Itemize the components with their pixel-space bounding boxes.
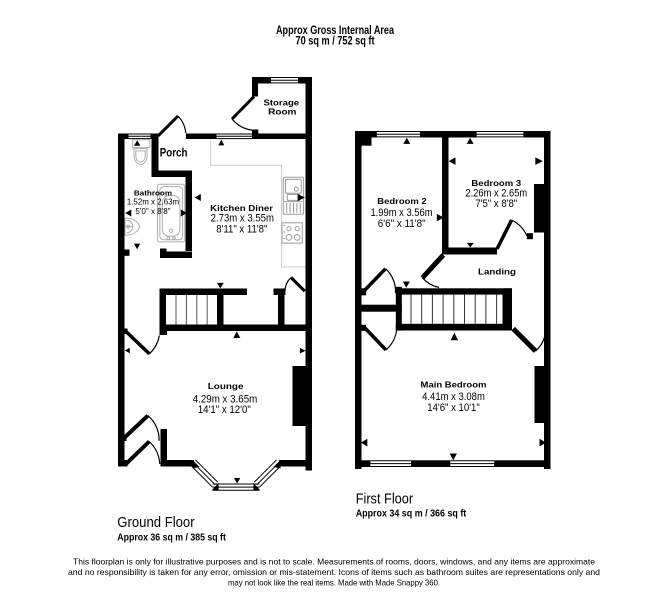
svg-text:may not look like the real ite: may not look like the real items. Made w…	[228, 578, 440, 587]
svg-text:Bedroom 3: Bedroom 3	[471, 178, 521, 188]
svg-text:Ground Floor: Ground Floor	[117, 515, 194, 531]
svg-text:1.52m x 2.63m: 1.52m x 2.63m	[127, 198, 179, 207]
svg-text:Bedroom 2: Bedroom 2	[377, 196, 427, 206]
svg-text:6'6" x 11'8": 6'6" x 11'8"	[378, 218, 426, 230]
svg-text:Kitchen Diner: Kitchen Diner	[210, 203, 273, 213]
svg-text:Approx 34 sq m / 366 sq ft: Approx 34 sq m / 366 sq ft	[356, 508, 467, 519]
svg-text:This floorplan is only for ill: This floorplan is only for illustrative …	[73, 557, 596, 566]
svg-text:5'0" x 8'8": 5'0" x 8'8"	[135, 207, 171, 216]
svg-text:8'11" x 11'8": 8'11" x 11'8"	[216, 223, 267, 235]
svg-text:14'1" x 12'0": 14'1" x 12'0"	[198, 404, 251, 416]
svg-text:Lounge: Lounge	[208, 381, 244, 391]
svg-text:First Floor: First Floor	[356, 491, 414, 507]
svg-text:Landing: Landing	[478, 266, 516, 276]
svg-text:Approx 36 sq m / 385 sq ft: Approx 36 sq m / 385 sq ft	[117, 533, 226, 544]
svg-text:and no responsibility is taken: and no responsibility is taken for any e…	[68, 568, 600, 577]
svg-text:7'5" x 8'8": 7'5" x 8'8"	[475, 198, 517, 210]
svg-text:14'6" x 10'1": 14'6" x 10'1"	[427, 402, 480, 414]
svg-text:Bathroom: Bathroom	[134, 189, 172, 198]
svg-text:Porch: Porch	[160, 146, 188, 159]
svg-text:70 sq m / 752 sq ft: 70 sq m / 752 sq ft	[296, 34, 375, 48]
svg-text:Main Bedroom: Main Bedroom	[421, 379, 487, 389]
svg-text:Room: Room	[268, 107, 296, 116]
svg-text:Storage: Storage	[264, 99, 300, 108]
